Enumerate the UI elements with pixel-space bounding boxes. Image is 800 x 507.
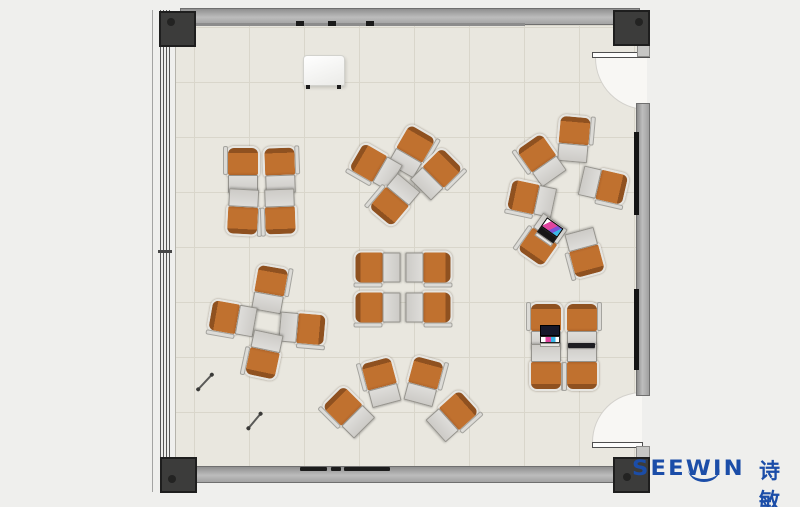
corner-post-top-right [613, 10, 650, 46]
chair [262, 145, 297, 177]
floor-plan-canvas: SEEWIN 诗敏 [0, 0, 800, 507]
desk-chair-unit [406, 290, 453, 326]
laptop-base [540, 343, 560, 347]
wall-rail-segment [300, 467, 327, 471]
desk-chair-unit [354, 250, 401, 286]
seewin-logo: SEEWIN 诗敏 [628, 452, 800, 492]
chair [226, 146, 260, 177]
door-hinge-top [637, 45, 650, 57]
desk [406, 293, 424, 323]
logo-brand-text: SEEWIN [632, 456, 745, 480]
window-joint-tick [158, 250, 172, 253]
desk-chair-unit [528, 344, 564, 391]
laptop-screen [540, 325, 560, 336]
board-foot [337, 85, 341, 89]
chair [225, 204, 261, 237]
desk-chair-unit [225, 146, 261, 193]
presentation-board [303, 55, 345, 86]
desk-chair-unit [406, 250, 453, 286]
chair [565, 302, 599, 333]
window-frame-line [152, 10, 153, 492]
chair [354, 291, 385, 325]
right-wall-panel-strip [634, 289, 639, 370]
corner-post-top-left [159, 11, 196, 47]
desk-chair-unit [564, 302, 600, 349]
desk-chair-unit [261, 145, 299, 193]
chair [529, 360, 563, 391]
desk-chair-unit [261, 188, 299, 236]
logo-smile-arc [688, 469, 720, 482]
desk-chair-unit [278, 309, 328, 349]
wall-mount-tick [296, 21, 304, 26]
chair [422, 291, 453, 325]
wall-mount-tick [366, 21, 374, 26]
tablet [568, 343, 595, 348]
desk-chair-unit [224, 188, 262, 237]
top-wall-trim [176, 23, 525, 26]
desk [383, 253, 401, 283]
wall-mount-tick [328, 21, 336, 26]
wall-rail-segment [344, 467, 390, 471]
desk [264, 188, 295, 207]
chair [294, 311, 328, 348]
chair [422, 251, 453, 285]
wall-rail-segment [331, 467, 341, 471]
chair [263, 204, 298, 236]
logo-cjk-text: 诗敏 [759, 455, 800, 507]
laptop [540, 325, 560, 347]
chair [565, 360, 599, 391]
board-foot [306, 85, 310, 89]
right-wall-panel-strip [634, 132, 639, 215]
laptop-keyboard [540, 336, 560, 343]
desk [228, 188, 259, 208]
corner-post-bottom-left [160, 457, 197, 493]
bottom-wall [182, 466, 648, 483]
desk-chair-unit [354, 290, 401, 326]
chair [354, 251, 385, 285]
desk [383, 293, 401, 323]
desk-chair-unit [564, 344, 600, 391]
desk [406, 253, 424, 283]
